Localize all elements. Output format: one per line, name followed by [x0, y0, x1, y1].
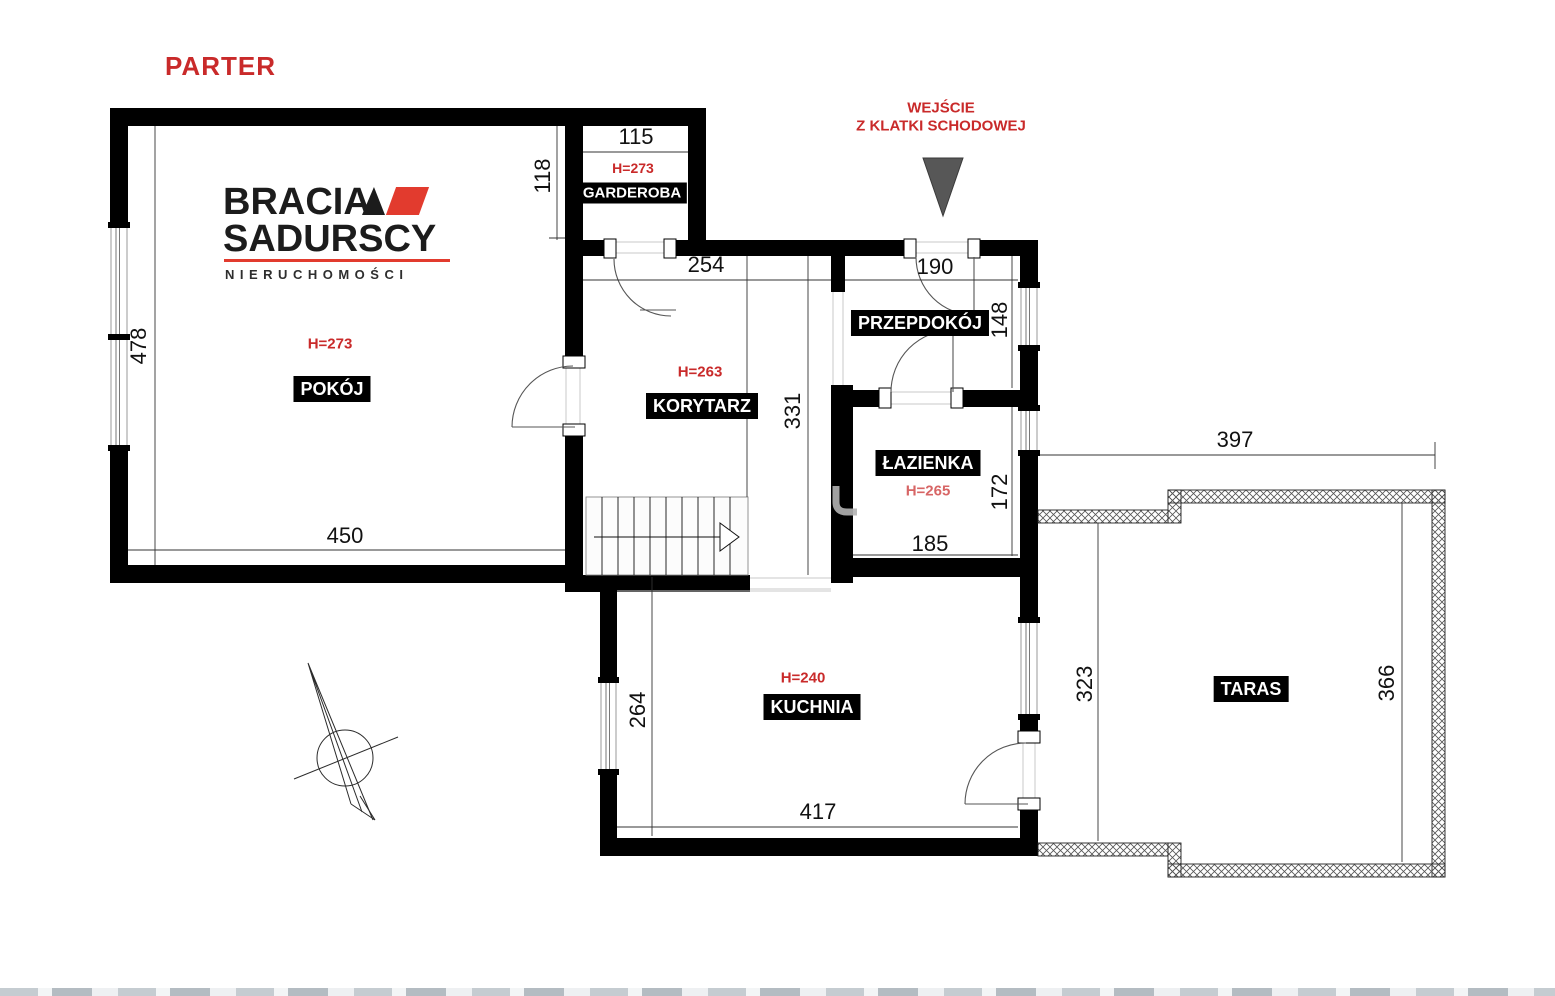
floor-plan-page: PARTER WEJŚCIE Z KLATKI SCHODOWEJ BRACIA… [0, 0, 1555, 996]
dim-przedpokoj-width: 190 [917, 256, 954, 278]
dim-kuchnia-width: 417 [800, 801, 837, 823]
photo-strip-fragment [0, 988, 1555, 996]
ceiling-height-pokoj: H=273 [308, 337, 353, 352]
dim-garderoba-depth: 118 [532, 158, 554, 193]
entrance-label-line1: WEJŚCIE [907, 101, 975, 116]
door-arc-lazienka [891, 330, 953, 392]
dim-pokoj-depth: 478 [128, 328, 150, 365]
logo-brand-line1: BRACIA [223, 183, 371, 221]
logo-tagline: NIERUCHOMOŚCI [225, 268, 408, 281]
dim-przedpokoj-depth: 148 [989, 302, 1011, 339]
dim-pokoj-width: 450 [327, 525, 364, 547]
door-arc-kuchnia-taras [965, 743, 1028, 804]
logo-red-parallelogram-icon [386, 187, 429, 215]
agency-logo: BRACIA SADURSCY NIERUCHOMOŚCI [223, 183, 463, 293]
room-label-taras: TARAS [1214, 676, 1289, 702]
room-label-lazienka: ŁAZIENKA [876, 450, 981, 476]
ceiling-height-korytarz: H=263 [678, 365, 723, 380]
room-label-przedpokoj: PRZEPDOKÓJ [851, 310, 989, 336]
room-label-kuchnia: KUCHNIA [764, 694, 861, 720]
ceiling-height-garderoba: H=273 [612, 161, 654, 175]
room-label-garderoba: GARDEROBA [577, 183, 687, 204]
room-label-pokoj: POKÓJ [293, 376, 370, 402]
dim-korytarz-depth: 331 [782, 393, 804, 430]
room-label-korytarz: KORYTARZ [646, 393, 758, 419]
north-arrow-icon [294, 663, 398, 820]
stairs [586, 497, 748, 575]
dim-korytarz-width: 254 [688, 254, 725, 276]
dim-taras-width: 397 [1217, 429, 1254, 451]
ceiling-height-kuchnia: H=240 [781, 671, 826, 686]
door-arc-garderoba [614, 259, 676, 316]
dim-lazienka-depth: 172 [989, 474, 1011, 511]
dim-kuchnia-depth: 264 [627, 692, 649, 729]
window-przedpokoj-right [1018, 282, 1040, 351]
entrance-label-line2: Z KLATKI SCHODOWEJ [856, 119, 1026, 134]
dim-taras-depth-right: 366 [1376, 665, 1398, 702]
entrance-arrow-icon [923, 158, 963, 216]
dim-garderoba-width: 115 [618, 126, 653, 148]
ceiling-height-lazienka: H=265 [906, 484, 951, 499]
window-kuchnia-right [1018, 617, 1040, 720]
dim-lazienka-width: 185 [912, 533, 949, 555]
window-kuchnia-left [598, 677, 619, 775]
page-title: PARTER [165, 53, 276, 79]
logo-brand-line2: SADURSCY [223, 220, 436, 258]
dim-taras-depth-left: 323 [1074, 666, 1096, 703]
window-lazienka-right [1018, 405, 1040, 456]
floor-plan-drawing [0, 0, 1555, 996]
logo-divider [224, 259, 450, 262]
